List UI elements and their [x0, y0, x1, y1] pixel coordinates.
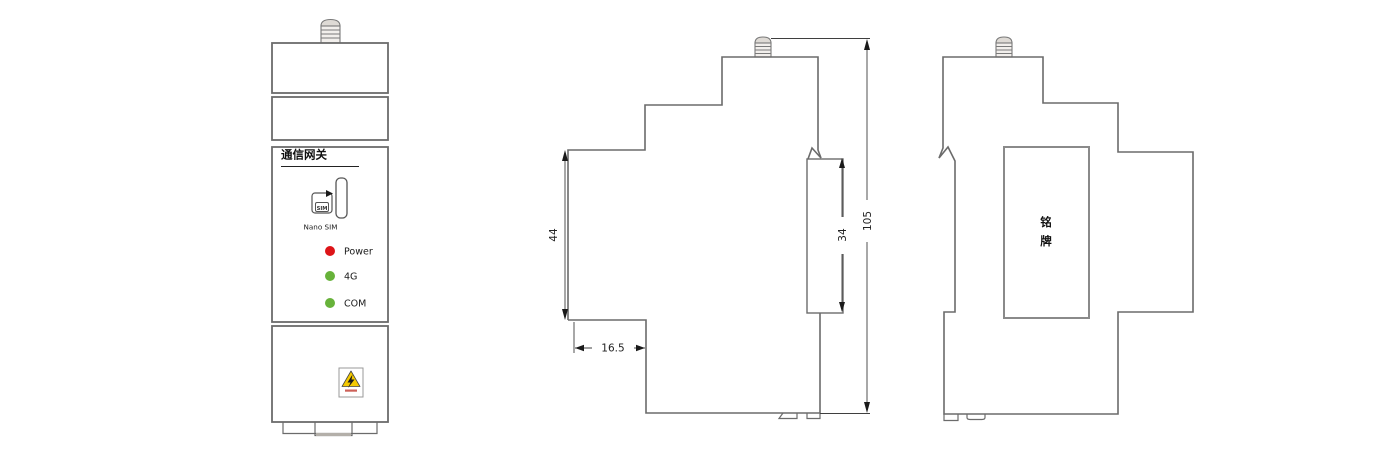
technical-drawing-page: 通信网关 SIM Nano SIM Power 4G COM: [0, 0, 1400, 452]
body-profile-upper: [568, 57, 821, 320]
led-4g-icon: [325, 271, 335, 281]
housing-upper-section: [272, 97, 388, 140]
bottom-terminal: [283, 422, 377, 436]
led-com-icon: [325, 298, 335, 308]
led-4g-label: 4G: [344, 272, 357, 283]
release-clip: [779, 413, 797, 419]
antenna-icon: [321, 20, 340, 44]
dim-16-5-value: 16.5: [601, 343, 624, 355]
warning-caption: [345, 390, 357, 392]
sim-chip-text: SIM: [317, 206, 328, 212]
nameplate-char-1: 铭: [1040, 215, 1052, 229]
antenna-cap: [755, 37, 771, 43]
housing-face-section: [272, 147, 388, 322]
rail-foot: [807, 413, 820, 419]
housing-bottom-section: [272, 326, 388, 422]
release-clip: [967, 414, 985, 420]
led-com-label: COM: [344, 299, 366, 310]
antenna-cap: [996, 37, 1012, 43]
led-power-label: Power: [344, 247, 373, 258]
dim-105-value: 105: [862, 211, 874, 231]
rail-foot: [944, 414, 958, 421]
terminal-outline: [283, 422, 377, 434]
product-label: 通信网关: [281, 148, 327, 162]
dimension-44: 44: [548, 150, 568, 320]
nameplate-char-2: 牌: [1040, 234, 1052, 248]
sim-caption: Nano SIM: [304, 223, 338, 232]
front-view: 通信网关 SIM Nano SIM Power 4G COM: [272, 20, 388, 436]
antenna-cap: [321, 20, 340, 27]
dim-34-value: 34: [837, 228, 849, 242]
gateway-dimension-drawing: 通信网关 SIM Nano SIM Power 4G COM: [0, 0, 1400, 452]
back-side-view: 铭 牌: [939, 37, 1193, 421]
nameplate-frame: [1004, 147, 1089, 318]
dim-44-value: 44: [548, 228, 560, 242]
sim-slot: [336, 178, 347, 218]
antenna-icon: [996, 37, 1012, 57]
side-view: 44 16.5 34 105: [548, 37, 874, 419]
high-voltage-warning-icon: [339, 368, 363, 397]
led-power-icon: [325, 246, 335, 256]
dimension-16-5: 16.5: [574, 322, 645, 355]
antenna-icon: [755, 37, 771, 57]
housing-top-section: [272, 43, 388, 93]
sim-card-icon: SIM: [312, 190, 333, 213]
nameplate: 铭 牌: [1004, 147, 1089, 318]
body-profile-lower: [568, 313, 820, 413]
